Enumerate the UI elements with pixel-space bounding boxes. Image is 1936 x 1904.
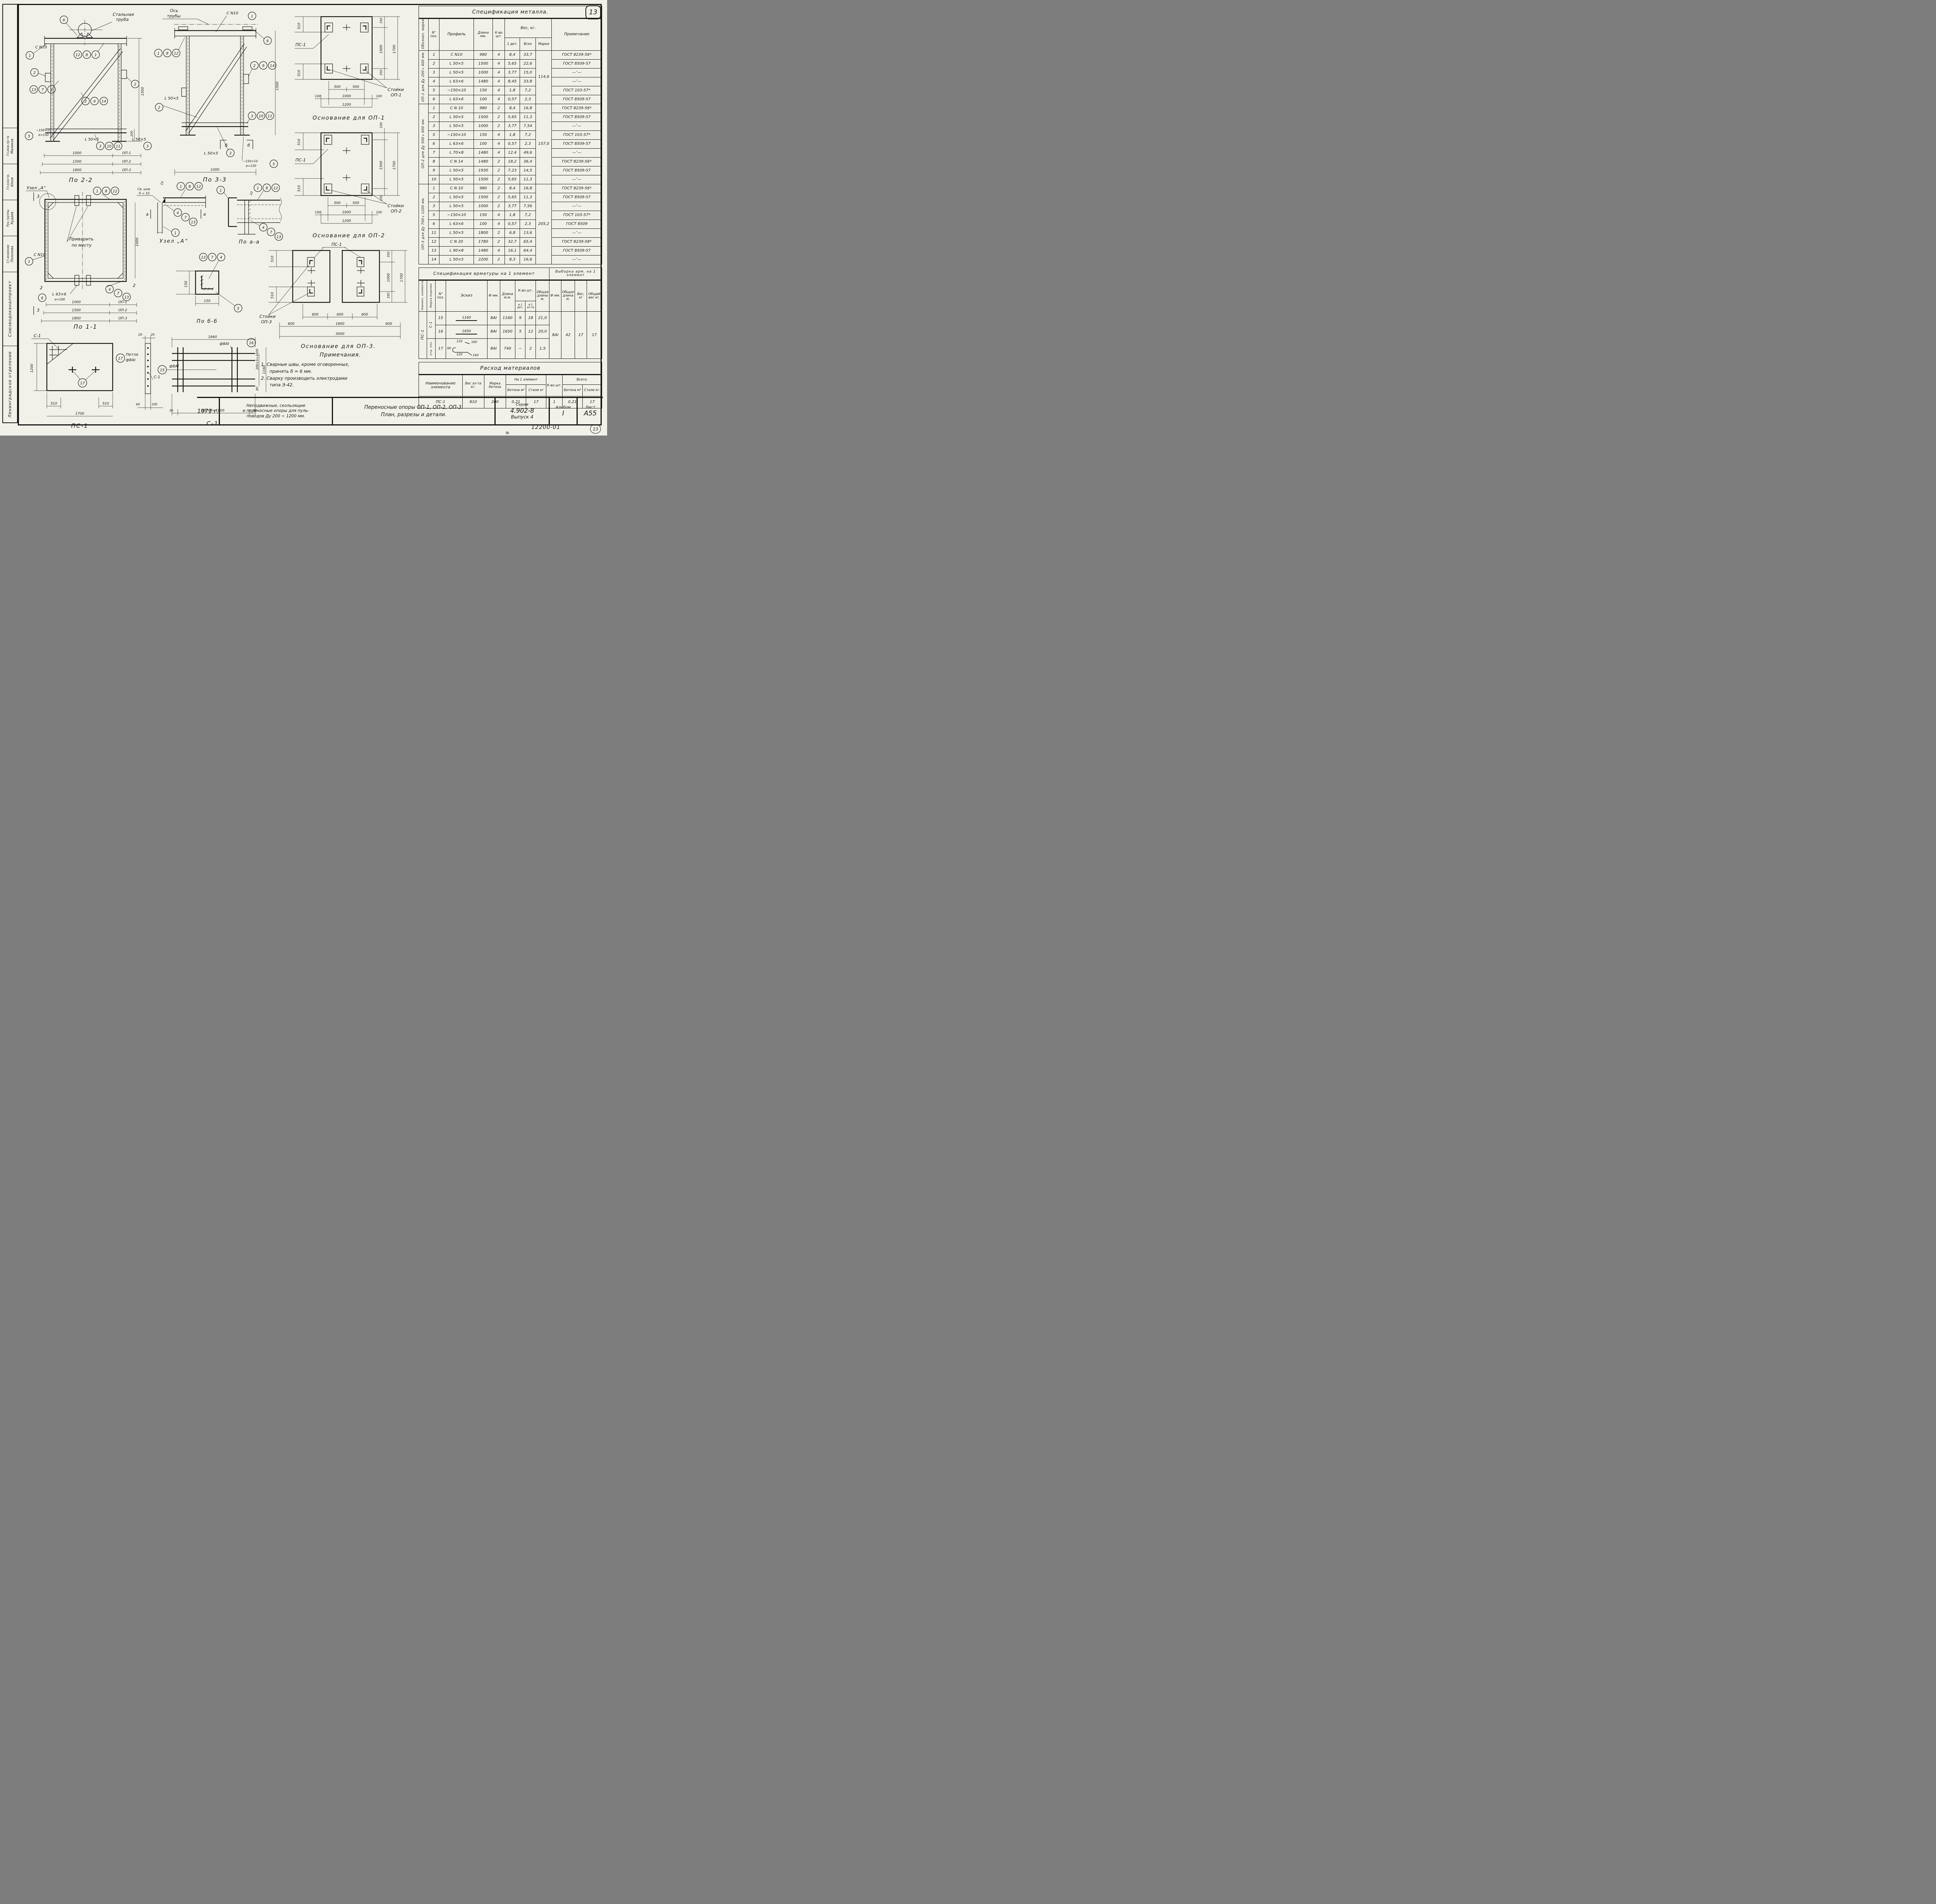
dim-label: 1700 xyxy=(393,45,396,53)
metal-cell: 16,6 xyxy=(520,256,536,264)
cell: 17 xyxy=(587,312,602,359)
metal-cell: −150×10 xyxy=(439,86,474,95)
metal-cell: 7,23 xyxy=(505,166,520,175)
dim-label: 20 xyxy=(151,333,154,336)
metal-cell: 2 xyxy=(493,238,505,247)
svg-text:15: 15 xyxy=(160,368,165,372)
col-wmark: Марки xyxy=(536,38,552,51)
metal-cell: −150×10 xyxy=(439,211,474,220)
metal-cell: 1 xyxy=(428,184,439,193)
stands-label: ОП-1 xyxy=(391,93,402,98)
dim-label: 1200 xyxy=(30,364,34,372)
metal-cell: L 63×6 xyxy=(439,140,474,149)
metal-cell: С N10 xyxy=(439,51,474,60)
metal-cell: 7,54 xyxy=(520,122,536,131)
metal-cell: 4 xyxy=(493,140,505,149)
metal-cell: 114,6 xyxy=(536,51,552,104)
metal-cell: 3,77 xyxy=(505,202,520,211)
dim-value: 1800 xyxy=(72,317,81,321)
balloon: 8 xyxy=(102,187,110,195)
sheet-cell: Лист А55 xyxy=(577,398,603,424)
balloon: 1 xyxy=(163,226,179,237)
metal-row: 10L 50×5150025,6511,3—″— xyxy=(419,175,602,184)
svg-text:1: 1 xyxy=(94,53,97,57)
metal-cell: 2 xyxy=(493,193,505,202)
drawing-title: Узел „А“ xyxy=(160,238,188,244)
balloon: 13 xyxy=(199,253,207,261)
metal-row: 5−150×1015041,87,2ГОСТ 103-57* xyxy=(419,211,602,220)
mesh-ref: С-1 xyxy=(154,375,160,379)
detail-uzel-a: Св. шов б = 10 10 1 8 12 4 7 13 1 xyxy=(135,180,213,245)
dim-label: 1500 xyxy=(379,161,383,170)
col-total-len2: Общая длина м. xyxy=(561,280,575,312)
cell: 1650 xyxy=(500,325,515,339)
role-name: Юхов xyxy=(10,177,14,187)
balloon: 5 xyxy=(25,132,33,140)
role-label: Гл.констр. xyxy=(6,174,10,190)
balloon: 8 xyxy=(186,182,194,190)
metal-cell: 1,8 xyxy=(505,86,520,95)
metal-cell: —″— xyxy=(552,77,602,86)
metal-cell: ОП-2 для Ду 500÷600 мм. xyxy=(419,104,429,184)
metal-cell: 10 xyxy=(428,175,439,184)
metal-row: 9L 50×5193027,2314,5ГОСТ 8509-57 xyxy=(419,166,602,175)
col-pos: N° поз. xyxy=(428,19,439,51)
cell: 16 xyxy=(436,325,446,339)
view-po-2-2: Стальная труба xyxy=(23,8,151,183)
metal-cell: —″— xyxy=(552,202,602,211)
metal-cell: ГОСТ 8509-57 xyxy=(552,140,602,149)
metal-cell: 7,2 xyxy=(520,131,536,140)
metal-cell: —″— xyxy=(552,256,602,264)
dim-label: 1200 xyxy=(342,103,351,107)
part-label: С N10 xyxy=(227,11,238,15)
svg-text:4: 4 xyxy=(50,88,53,92)
materials-table-title: Расход материалов xyxy=(419,362,602,375)
rebar-table-title2: Выборка арм. на 1 элемент xyxy=(549,268,602,280)
metal-cell: 3,77 xyxy=(505,122,520,131)
metal-cell: 13,6 xyxy=(520,229,536,238)
metal-cell: 4 xyxy=(428,77,439,86)
metal-cell: L 63×6 xyxy=(439,95,474,104)
po-1-1-svg: Узел „А“ Приварить по месту С N1 xyxy=(24,184,140,329)
balloon: 1 xyxy=(92,43,104,58)
metal-cell: 16,8 xyxy=(520,184,536,193)
svg-text:7: 7 xyxy=(270,230,272,235)
metal-cell: 4 xyxy=(493,86,505,95)
svg-text:13: 13 xyxy=(124,295,129,300)
metal-cell: ГОСТ 8239-58* xyxy=(552,238,602,247)
metal-cell: ОП-3 для Ду 700÷1200 мм. xyxy=(419,184,429,264)
balloon: 1 xyxy=(248,12,256,20)
sketch-cell: 1160 xyxy=(446,312,487,325)
dim-label: 600 xyxy=(336,313,343,317)
dim-label: 600 xyxy=(288,322,294,326)
role-name: Маликов xyxy=(10,139,14,154)
drawing-title: По 1-1 xyxy=(74,323,98,330)
cell: 740 xyxy=(500,339,515,359)
dim-label: 500 xyxy=(334,85,340,89)
desc-line: и переносные опоры для пуль- xyxy=(242,408,309,413)
cell: 2 xyxy=(525,339,536,359)
metal-cell: 150 xyxy=(474,131,493,140)
drawing-title: ПС-1 xyxy=(71,422,89,429)
series-description: Неподвижные, скользящие и переносные опо… xyxy=(219,398,332,424)
metal-cell: ГОСТ 8509 xyxy=(552,220,602,229)
metal-cell: 4 xyxy=(493,247,505,256)
metal-cell: 15,0 xyxy=(520,69,536,77)
metal-cell: 13 xyxy=(428,247,439,256)
metal-cell: 4 xyxy=(493,149,505,158)
metal-cell: 2200 xyxy=(474,256,493,264)
dim-label: 1500 xyxy=(141,87,145,96)
cell: 8АI xyxy=(549,312,561,359)
metal-row: 8С N 141480218,236,4ГОСТ 8239-56* xyxy=(419,158,602,166)
cell: 5 xyxy=(515,325,525,339)
metal-cell: ГОСТ 103-57* xyxy=(552,211,602,220)
balloon: 5 xyxy=(270,160,278,168)
base-op-2-svg: ПС-1 510 510 100 1500 100 1700 xyxy=(279,124,418,240)
dim-label: 1000 xyxy=(387,273,391,282)
metal-row: 2L 50×5150045,6522,6ГОСТ 8509-57 xyxy=(419,60,602,69)
metal-cell: 980 xyxy=(474,104,493,113)
note-line: типа Э-42. xyxy=(269,382,420,389)
metal-cell: 5,65 xyxy=(505,193,520,202)
detail-ref: Узел „А“ xyxy=(27,185,46,190)
svg-text:1: 1 xyxy=(174,231,177,235)
metal-cell: С N 10 xyxy=(439,104,474,113)
stamp-org-2: Ленинградское отделение xyxy=(3,346,17,422)
metal-cell: 3,77 xyxy=(505,69,520,77)
po-2-2-svg: Стальная труба xyxy=(23,8,151,183)
svg-text:12: 12 xyxy=(76,53,80,57)
svg-text:4: 4 xyxy=(108,288,111,292)
part-label: L 50×5 xyxy=(165,96,178,101)
metal-cell: 2,3 xyxy=(520,140,536,149)
metal-cell: 7,2 xyxy=(520,86,536,95)
svg-text:3: 3 xyxy=(229,151,232,156)
series-number: 4.902-8 xyxy=(510,407,534,414)
balloon: 12 xyxy=(258,184,280,199)
svg-text:3: 3 xyxy=(251,114,253,118)
metal-cell: 100 xyxy=(474,220,493,229)
metal-cell: ОП-1 для Ду 200÷400 мм. xyxy=(419,51,429,104)
svg-text:7: 7 xyxy=(184,216,187,220)
svg-text:3: 3 xyxy=(99,144,101,149)
metal-cell: 12,4 xyxy=(505,149,520,158)
balloon: 3 xyxy=(217,127,234,157)
stands-label: Стойки xyxy=(388,203,404,208)
svg-text:6: 6 xyxy=(63,18,65,22)
svg-text:11: 11 xyxy=(116,144,120,149)
metal-cell: 1 xyxy=(428,104,439,113)
metal-cell: —″— xyxy=(552,149,602,158)
balloon: 12 xyxy=(172,38,185,57)
section-mark: б xyxy=(225,143,228,148)
axis-label: трубы xyxy=(167,14,181,19)
po-3-3-svg: Ось трубы С N10 1 xyxy=(151,7,278,183)
cell: 8АI xyxy=(487,325,500,339)
svg-text:6: 6 xyxy=(266,39,269,43)
dim-label: 600 xyxy=(385,322,392,326)
part-label: L 50×5 xyxy=(85,137,99,142)
svg-text:14: 14 xyxy=(270,64,275,68)
dim-label: 100 xyxy=(379,122,383,128)
svg-text:8: 8 xyxy=(266,186,268,190)
balloon: 13 xyxy=(189,218,197,226)
metal-cell: 980 xyxy=(474,184,493,193)
svg-text:2: 2 xyxy=(134,82,136,87)
po-a-a-svg: 10 1 1 8 12 4 7 13 По а-а xyxy=(215,180,284,245)
dim-label: 30 xyxy=(169,409,173,412)
metal-cell: 1500 xyxy=(474,175,493,184)
balloon: 7 xyxy=(114,289,122,297)
dim-label: 150 xyxy=(184,281,188,287)
balloon: 1 xyxy=(154,49,162,57)
axis-label: Ось xyxy=(170,8,178,13)
series-label: Серия xyxy=(516,403,529,407)
dim-mark: ОП-2 xyxy=(122,160,131,164)
metal-cell: 2,3 xyxy=(520,220,536,229)
metal-row: 5−150×1015041,87,2ГОСТ 103-57* xyxy=(419,131,602,140)
svg-text:2: 2 xyxy=(253,64,256,68)
svg-text:1: 1 xyxy=(96,189,98,194)
part-label: ф8АI xyxy=(169,364,179,369)
balloon: 7 xyxy=(267,228,275,236)
balloon: 9 xyxy=(91,97,98,105)
slab-label: ПС-1 xyxy=(295,158,306,163)
svg-text:1: 1 xyxy=(257,186,259,190)
col-qty: К-во шт. xyxy=(515,280,535,301)
dim-label: 100 xyxy=(376,94,382,98)
dim-label: 10 xyxy=(160,181,164,186)
metal-cell: 2 xyxy=(493,184,505,193)
dim-value: 1800 xyxy=(73,168,82,172)
col-profile: Профиль xyxy=(439,19,474,51)
part-label: L 63×6 xyxy=(52,292,66,297)
metal-cell: 5 xyxy=(428,131,439,140)
dim-value: 1500 xyxy=(72,309,81,312)
col-concrete2: Бетона м³ xyxy=(562,385,582,396)
dim-label: 100 xyxy=(379,195,383,201)
dim-label: 600 xyxy=(312,313,318,317)
svg-text:1: 1 xyxy=(157,51,160,56)
metal-cell: 1780 xyxy=(474,238,493,247)
item-mark: отд. поз. xyxy=(427,339,436,359)
metal-cell: 2 xyxy=(428,113,439,122)
metal-cell: 1,8 xyxy=(505,131,520,140)
metal-cell: ГОСТ 103-57* xyxy=(552,86,602,95)
col-total-len: Общая длина м. xyxy=(536,280,549,312)
metal-cell: 5 xyxy=(428,86,439,95)
dim-label: 510 xyxy=(271,292,275,298)
metal-cell: 150 xyxy=(474,86,493,95)
cell: 17 xyxy=(436,339,446,359)
metal-cell: 2 xyxy=(493,104,505,113)
cell: 8АI xyxy=(487,312,500,325)
metal-cell: ГОСТ 8239-56* xyxy=(552,158,602,166)
dim-label: 150 xyxy=(204,299,210,303)
dim-label: 1000 xyxy=(379,45,383,53)
stamp-strip: Гл.инж.пр-та Маликов Гл.констр. Юхов Рук… xyxy=(2,4,18,423)
metal-cell: L 50×5 xyxy=(439,193,474,202)
metal-row: 14L 50×5220028,316,6—″— xyxy=(419,256,602,264)
metal-cell: 3 xyxy=(428,122,439,131)
col-mark: Обознач. марки xyxy=(419,19,429,51)
dim-label: 1200 xyxy=(342,219,351,223)
album-cell: Альбом I xyxy=(549,398,577,424)
metal-cell: L 50×5 xyxy=(439,69,474,77)
svg-text:10: 10 xyxy=(259,114,263,118)
cell: − xyxy=(515,339,525,359)
metal-cell: 2 xyxy=(493,166,505,175)
plan-base-op-3: ПС-1 510 510 xyxy=(257,242,418,351)
sheet-label: Лист xyxy=(585,405,595,410)
svg-text:13: 13 xyxy=(201,256,206,260)
metal-cell: L 50×5 xyxy=(439,60,474,69)
metal-row: 7L 70×81480412,449,6—″— xyxy=(419,149,602,158)
notes-block: Примечания. 1. Сварные швы, кроме оговор… xyxy=(261,352,420,389)
dim-mark: ОП-1 xyxy=(118,300,127,304)
svg-text:8: 8 xyxy=(166,51,168,56)
note-line: 1. Сварные швы, кроме оговоренных, xyxy=(261,361,420,368)
col-per-element: На 1 элемент xyxy=(506,375,546,385)
metal-row: 13L 90×81480416,164,4ГОСТ 8509-57 xyxy=(419,247,602,256)
dim-label: 600 xyxy=(361,313,368,317)
metal-cell: 2,3 xyxy=(520,95,536,104)
mesh-ref: С-1 xyxy=(34,333,41,338)
metal-cell: 1500 xyxy=(474,113,493,122)
balloon: 2 xyxy=(248,62,258,77)
col-dia2: Ф мм. xyxy=(549,280,561,312)
balloon: 1 xyxy=(177,182,185,190)
balloon: 1 xyxy=(93,187,101,195)
balloon: 3 xyxy=(94,134,104,150)
balloon: 2 xyxy=(81,93,89,105)
metal-cell: 100 xyxy=(474,95,493,104)
metal-cell: L 70×8 xyxy=(439,149,474,158)
svg-text:9: 9 xyxy=(93,99,96,104)
cell: 20,0 xyxy=(536,325,549,339)
dim-label: 10 xyxy=(249,191,254,196)
metal-cell: 8,4 xyxy=(505,51,520,60)
metal-cell: 157,0 xyxy=(536,104,552,184)
metal-cell: 5,65 xyxy=(505,175,520,184)
dim-value: 1000 xyxy=(73,151,82,155)
metal-cell: 8,45 xyxy=(505,77,520,86)
tables-column: Спецификация металла. Обознач. марки N° … xyxy=(419,6,602,408)
stamp-spacer xyxy=(3,5,17,128)
metal-cell: С N 10 xyxy=(439,184,474,193)
balloon: 17 xyxy=(73,371,95,387)
metal-cell: 980 xyxy=(474,51,493,60)
balloon: 4 xyxy=(165,204,182,216)
metal-cell: ГОСТ 103-57* xyxy=(552,131,602,140)
slab-label: ПС-1 xyxy=(331,242,342,247)
cell: 1160 xyxy=(500,312,515,325)
metal-cell: 4 xyxy=(493,95,505,104)
metal-table-body: ОП-1 для Ду 200÷400 мм.1С N1098048,433,7… xyxy=(419,51,602,264)
metal-cell: ГОСТ 8239-56* xyxy=(552,104,602,113)
base-op-3-svg: ПС-1 510 510 xyxy=(257,242,418,351)
org-name: Союзводоканалпроект xyxy=(8,281,12,337)
col-total: Всего: xyxy=(562,375,602,385)
col-qty: К-во шт. xyxy=(493,19,505,51)
page-number-badge: 13 xyxy=(585,5,601,19)
metal-cell: 2 xyxy=(428,193,439,202)
svg-text:9: 9 xyxy=(262,64,264,68)
balloon: 14 xyxy=(100,97,108,105)
metal-cell: 4 xyxy=(493,51,505,60)
metal-cell: 4 xyxy=(493,131,505,140)
bent-bar-sketch: 120 160 60 120 160 xyxy=(447,340,486,358)
metal-cell: 22,6 xyxy=(520,60,536,69)
metal-cell: 4 xyxy=(493,220,505,229)
balloon: 13 xyxy=(30,86,38,93)
metal-cell: 2 xyxy=(428,60,439,69)
metal-row: 6L 63×610040,572,3ГОСТ 8509-57 xyxy=(419,140,602,149)
section-mark: 2 xyxy=(40,285,43,290)
metal-row: 12С N 201780232,765,4ГОСТ 8239-58* xyxy=(419,238,602,247)
cell: 17 xyxy=(575,312,587,359)
balloon: 3 xyxy=(247,112,256,124)
dim-label: 200×5=1000 xyxy=(256,349,259,370)
metal-cell: 16,8 xyxy=(520,104,536,113)
metal-cell: 8,4 xyxy=(505,184,520,193)
dim-label: 200 xyxy=(130,131,134,137)
metal-cell: 1480 xyxy=(474,149,493,158)
dim-label: 1800 xyxy=(336,322,345,326)
rebar-table-title: Спецификация арматуры на 1 элемент xyxy=(419,268,549,280)
metal-cell: L 63×6 xyxy=(439,220,474,229)
col-q1: в 1 дет. xyxy=(515,301,525,312)
metal-cell: 205,2 xyxy=(536,184,552,264)
metal-cell: ГОСТ 8239-56* xyxy=(552,51,602,60)
title-block: 1971 г. Неподвижные, скользящие и перено… xyxy=(197,397,603,424)
metal-cell: ГОСТ 8509-57 xyxy=(552,95,602,104)
metal-row: 2L 50×5150025,6511,3ГОСТ 8509-57 xyxy=(419,193,602,202)
base-op-1-svg: ПС-1 510 510 350 1000 350 1700 xyxy=(279,7,418,122)
metal-row: 3L 50×5100023,777,54—″— xyxy=(419,122,602,131)
balloon: 4 xyxy=(48,81,58,93)
svg-text:14: 14 xyxy=(101,99,106,104)
col-weight: Вес, кг xyxy=(575,280,587,312)
dim-label: 60 xyxy=(136,403,140,406)
part-label: ф8АI xyxy=(126,358,136,362)
metal-cell: 1,8 xyxy=(505,211,520,220)
svg-text:13: 13 xyxy=(31,88,36,92)
col-qty: К-во шт. xyxy=(546,375,563,396)
metal-cell: 18,2 xyxy=(505,158,520,166)
metal-cell: 36,4 xyxy=(520,158,536,166)
metal-cell: ГОСТ 8509-57 xyxy=(552,193,602,202)
metal-cell: 7 xyxy=(428,149,439,158)
cell: 9 xyxy=(515,312,525,325)
svg-text:2: 2 xyxy=(84,99,87,104)
view-po-3-3: Ось трубы С N10 1 xyxy=(151,7,278,183)
stamp-role-4: Ст.инженер Полозова xyxy=(3,236,17,272)
col-total-weight: Общий вес кг. xyxy=(587,280,602,312)
rebar-spec-table: Спецификация арматуры на 1 элемент Выбор… xyxy=(419,268,602,359)
svg-text:3: 3 xyxy=(146,144,149,149)
dim-label: 500 xyxy=(352,85,359,89)
metal-cell: L 50×5 xyxy=(439,175,474,184)
metal-cell: 2 xyxy=(493,256,505,264)
po-b-b-svg: 13 7 4 150 150 5 По б-б xyxy=(158,247,247,328)
metal-cell: 2 xyxy=(493,202,505,211)
cell: 15 xyxy=(436,312,446,325)
col-note: Примечание xyxy=(552,19,602,51)
